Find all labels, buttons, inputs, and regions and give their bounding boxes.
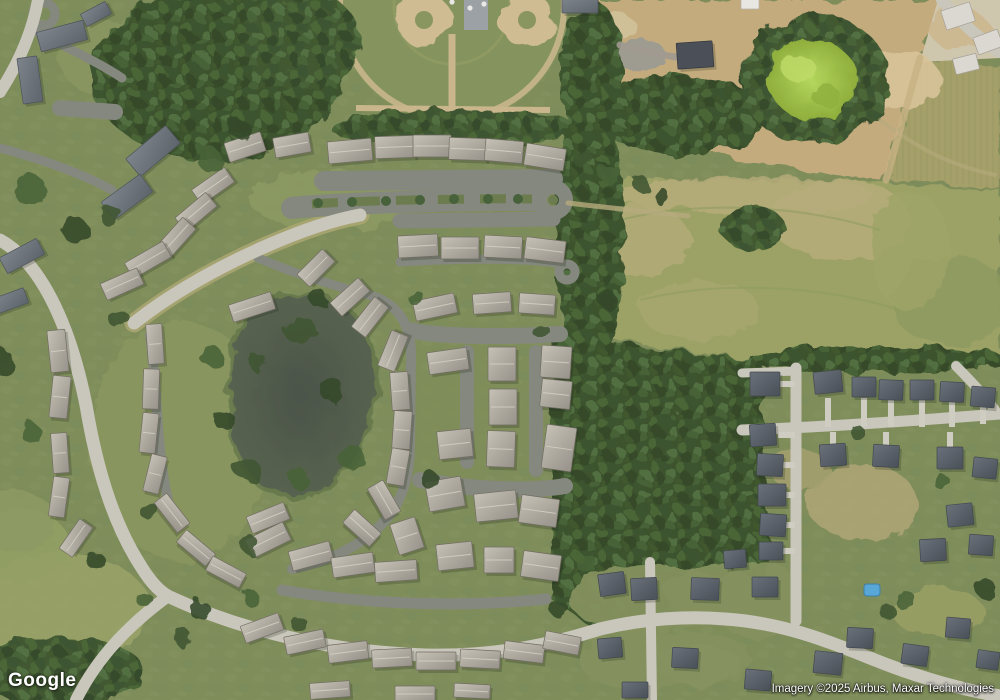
google-logo[interactable]: Google	[8, 670, 76, 692]
aerial-imagery[interactable]	[0, 0, 1000, 700]
satellite-map[interactable]: Google Imagery ©2025 Airbus, Maxar Techn…	[0, 0, 1000, 700]
map-attribution: Imagery ©2025 Airbus, Maxar Technologies	[772, 683, 994, 695]
